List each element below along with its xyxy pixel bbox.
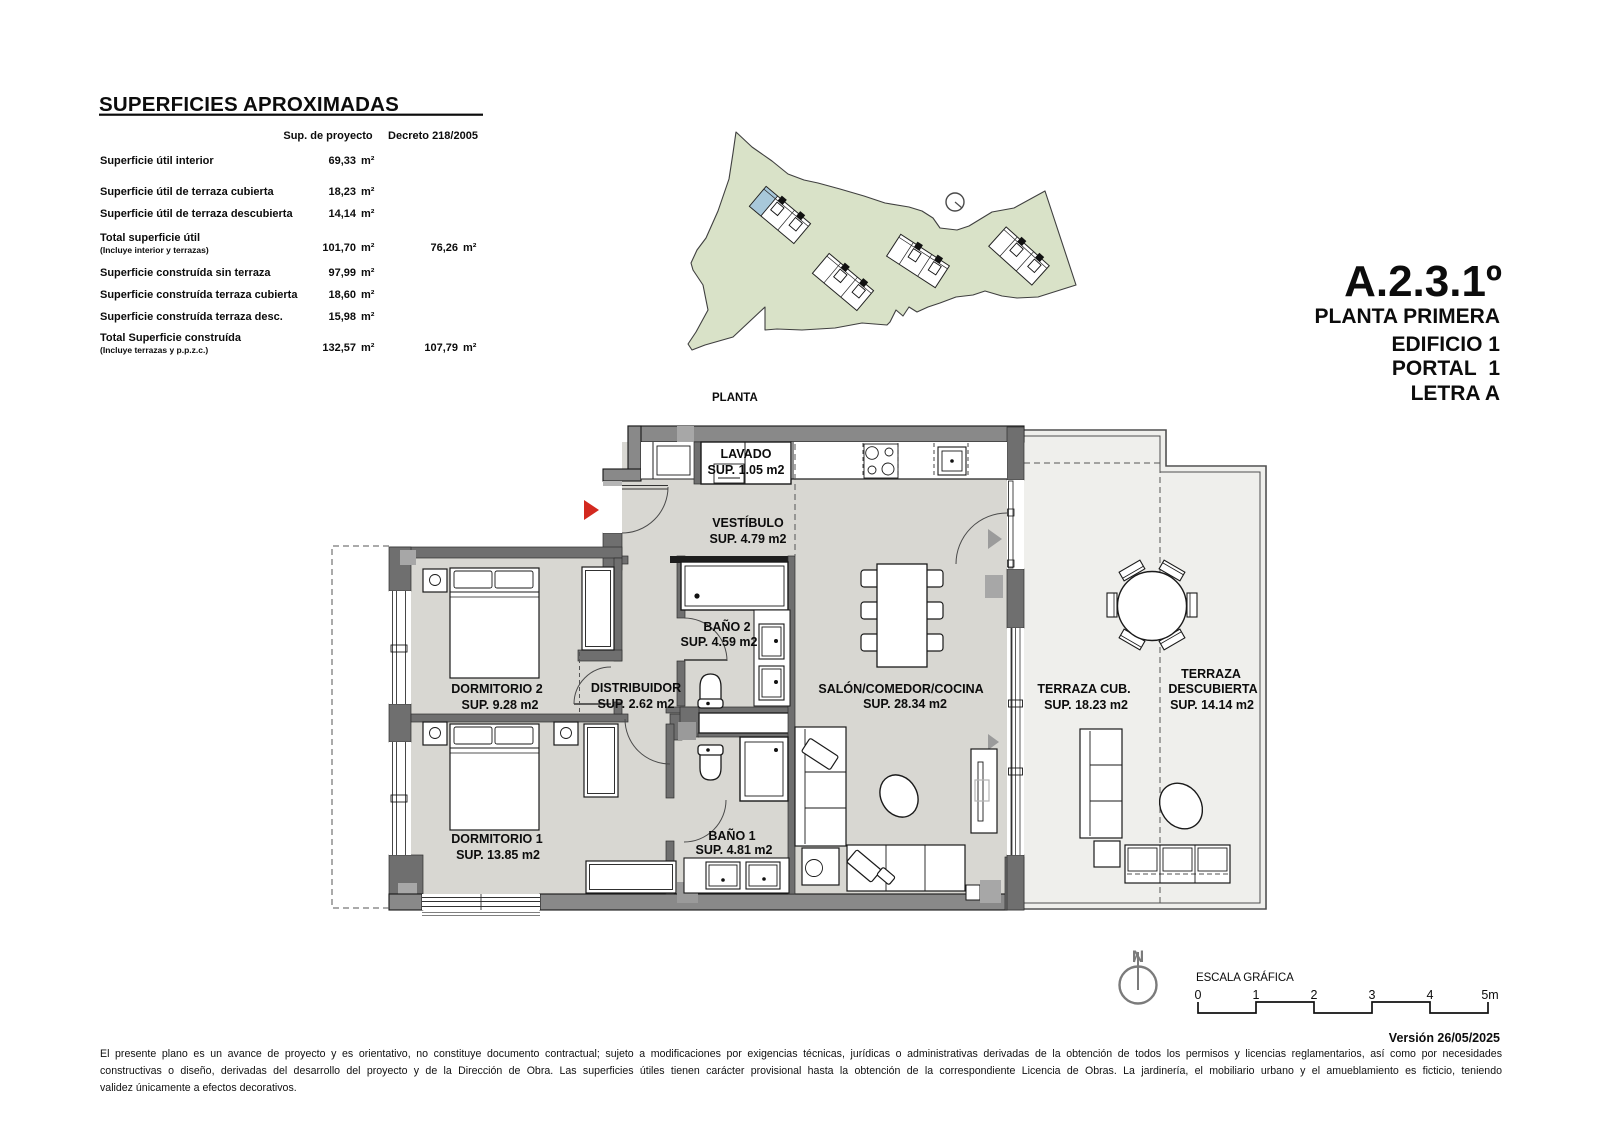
svg-text:0: 0 bbox=[1195, 988, 1202, 1002]
svg-text:Versión 26/05/2025: Versión 26/05/2025 bbox=[1389, 1031, 1500, 1045]
svg-text:(Incluye interior y terrazas): (Incluye interior y terrazas) bbox=[100, 245, 209, 255]
svg-text:BAÑO 2: BAÑO 2 bbox=[703, 619, 750, 634]
svg-text:SUP. 13.85 m2: SUP. 13.85 m2 bbox=[456, 848, 540, 862]
svg-text:SUP. 2.62 m2: SUP. 2.62 m2 bbox=[598, 697, 675, 711]
svg-text:SUP. 4.79 m2: SUP. 4.79 m2 bbox=[710, 532, 787, 546]
svg-text:PLANTA: PLANTA bbox=[712, 392, 758, 404]
svg-text:A.2.3.1º: A.2.3.1º bbox=[1344, 257, 1502, 306]
svg-text:m²: m² bbox=[463, 242, 477, 254]
svg-text:m²: m² bbox=[361, 342, 375, 354]
svg-text:Total superficie útil: Total superficie útil bbox=[100, 232, 200, 244]
svg-text:69,33: 69,33 bbox=[328, 155, 356, 167]
svg-text:Superficie construída sin terr: Superficie construída sin terraza bbox=[100, 267, 271, 279]
svg-text:TERRAZA: TERRAZA bbox=[1181, 667, 1241, 681]
svg-text:BAÑO 1: BAÑO 1 bbox=[708, 828, 755, 843]
svg-text:m²: m² bbox=[361, 311, 375, 323]
svg-text:18,60: 18,60 bbox=[328, 289, 356, 301]
svg-text:PORTAL 1: PORTAL 1 bbox=[1392, 357, 1500, 380]
svg-text:m²: m² bbox=[361, 208, 375, 220]
svg-text:SUP. 4.81 m2: SUP. 4.81 m2 bbox=[696, 843, 773, 857]
svg-text:3: 3 bbox=[1369, 988, 1376, 1002]
svg-text:PLANTA PRIMERA: PLANTA PRIMERA bbox=[1315, 305, 1501, 328]
svg-text:m²: m² bbox=[361, 289, 375, 301]
svg-text:97,99: 97,99 bbox=[328, 267, 356, 279]
svg-text:SUP. 1.05 m2: SUP. 1.05 m2 bbox=[708, 463, 785, 477]
svg-text:18,23: 18,23 bbox=[328, 186, 356, 198]
svg-text:m²: m² bbox=[361, 267, 375, 279]
svg-text:Superficie construída terraza: Superficie construída terraza cubierta bbox=[100, 289, 298, 301]
svg-text:EDIFICIO 1: EDIFICIO 1 bbox=[1391, 333, 1500, 356]
svg-text:5m: 5m bbox=[1481, 988, 1498, 1002]
svg-text:VESTÍBULO: VESTÍBULO bbox=[712, 515, 784, 530]
svg-text:DISTRIBUIDOR: DISTRIBUIDOR bbox=[591, 681, 681, 695]
svg-text:SUP. 9.28 m2: SUP. 9.28 m2 bbox=[462, 698, 539, 712]
svg-text:14,14: 14,14 bbox=[328, 208, 356, 220]
svg-text:Superficie útil interior: Superficie útil interior bbox=[100, 155, 214, 167]
svg-text:SUPERFICIES APROXIMADAS: SUPERFICIES APROXIMADAS bbox=[99, 93, 399, 116]
svg-text:ESCALA GRÁFICA: ESCALA GRÁFICA bbox=[1196, 971, 1294, 984]
svg-text:SUP. 18.23 m2: SUP. 18.23 m2 bbox=[1044, 698, 1128, 712]
svg-text:15,98: 15,98 bbox=[328, 311, 356, 323]
svg-text:Superficie construída terraza: Superficie construída terraza desc. bbox=[100, 311, 283, 323]
svg-text:m²: m² bbox=[463, 342, 477, 354]
svg-text:SALÓN/COMEDOR/COCINA: SALÓN/COMEDOR/COCINA bbox=[818, 681, 983, 696]
svg-text:m²: m² bbox=[361, 155, 375, 167]
svg-text:76,26: 76,26 bbox=[430, 242, 458, 254]
svg-text:LAVADO: LAVADO bbox=[721, 447, 772, 461]
svg-text:101,70: 101,70 bbox=[322, 242, 356, 254]
svg-text:LETRA A: LETRA A bbox=[1411, 382, 1500, 405]
svg-text:2: 2 bbox=[1311, 988, 1318, 1002]
svg-text:4: 4 bbox=[1427, 988, 1434, 1002]
svg-text:SUP. 4.59 m2: SUP. 4.59 m2 bbox=[681, 635, 758, 649]
svg-text:m²: m² bbox=[361, 186, 375, 198]
svg-text:107,79: 107,79 bbox=[424, 342, 458, 354]
svg-text:Decreto 218/2005: Decreto 218/2005 bbox=[388, 130, 478, 142]
svg-text:m²: m² bbox=[361, 242, 375, 254]
svg-text:DORMITORIO 1: DORMITORIO 1 bbox=[451, 832, 542, 846]
svg-text:1: 1 bbox=[1253, 988, 1260, 1002]
svg-text:Total Superficie construída: Total Superficie construída bbox=[100, 332, 242, 344]
svg-text:SUP. 28.34 m2: SUP. 28.34 m2 bbox=[863, 697, 947, 711]
svg-text:Superficie útil de terraza cub: Superficie útil de terraza cubierta bbox=[100, 186, 274, 198]
svg-text:TERRAZA CUB.: TERRAZA CUB. bbox=[1037, 682, 1130, 696]
svg-text:Superficie útil de terraza des: Superficie útil de terraza descubierta bbox=[100, 208, 293, 220]
svg-text:DESCUBIERTA: DESCUBIERTA bbox=[1168, 682, 1257, 696]
svg-text:SUP. 14.14 m2: SUP. 14.14 m2 bbox=[1170, 698, 1254, 712]
svg-text:Sup. de proyecto: Sup. de proyecto bbox=[283, 130, 373, 142]
svg-text:DORMITORIO 2: DORMITORIO 2 bbox=[451, 682, 542, 696]
svg-text:132,57: 132,57 bbox=[322, 342, 356, 354]
svg-text:(Incluye terrazas y p.p.z.c.): (Incluye terrazas y p.p.z.c.) bbox=[100, 345, 208, 355]
